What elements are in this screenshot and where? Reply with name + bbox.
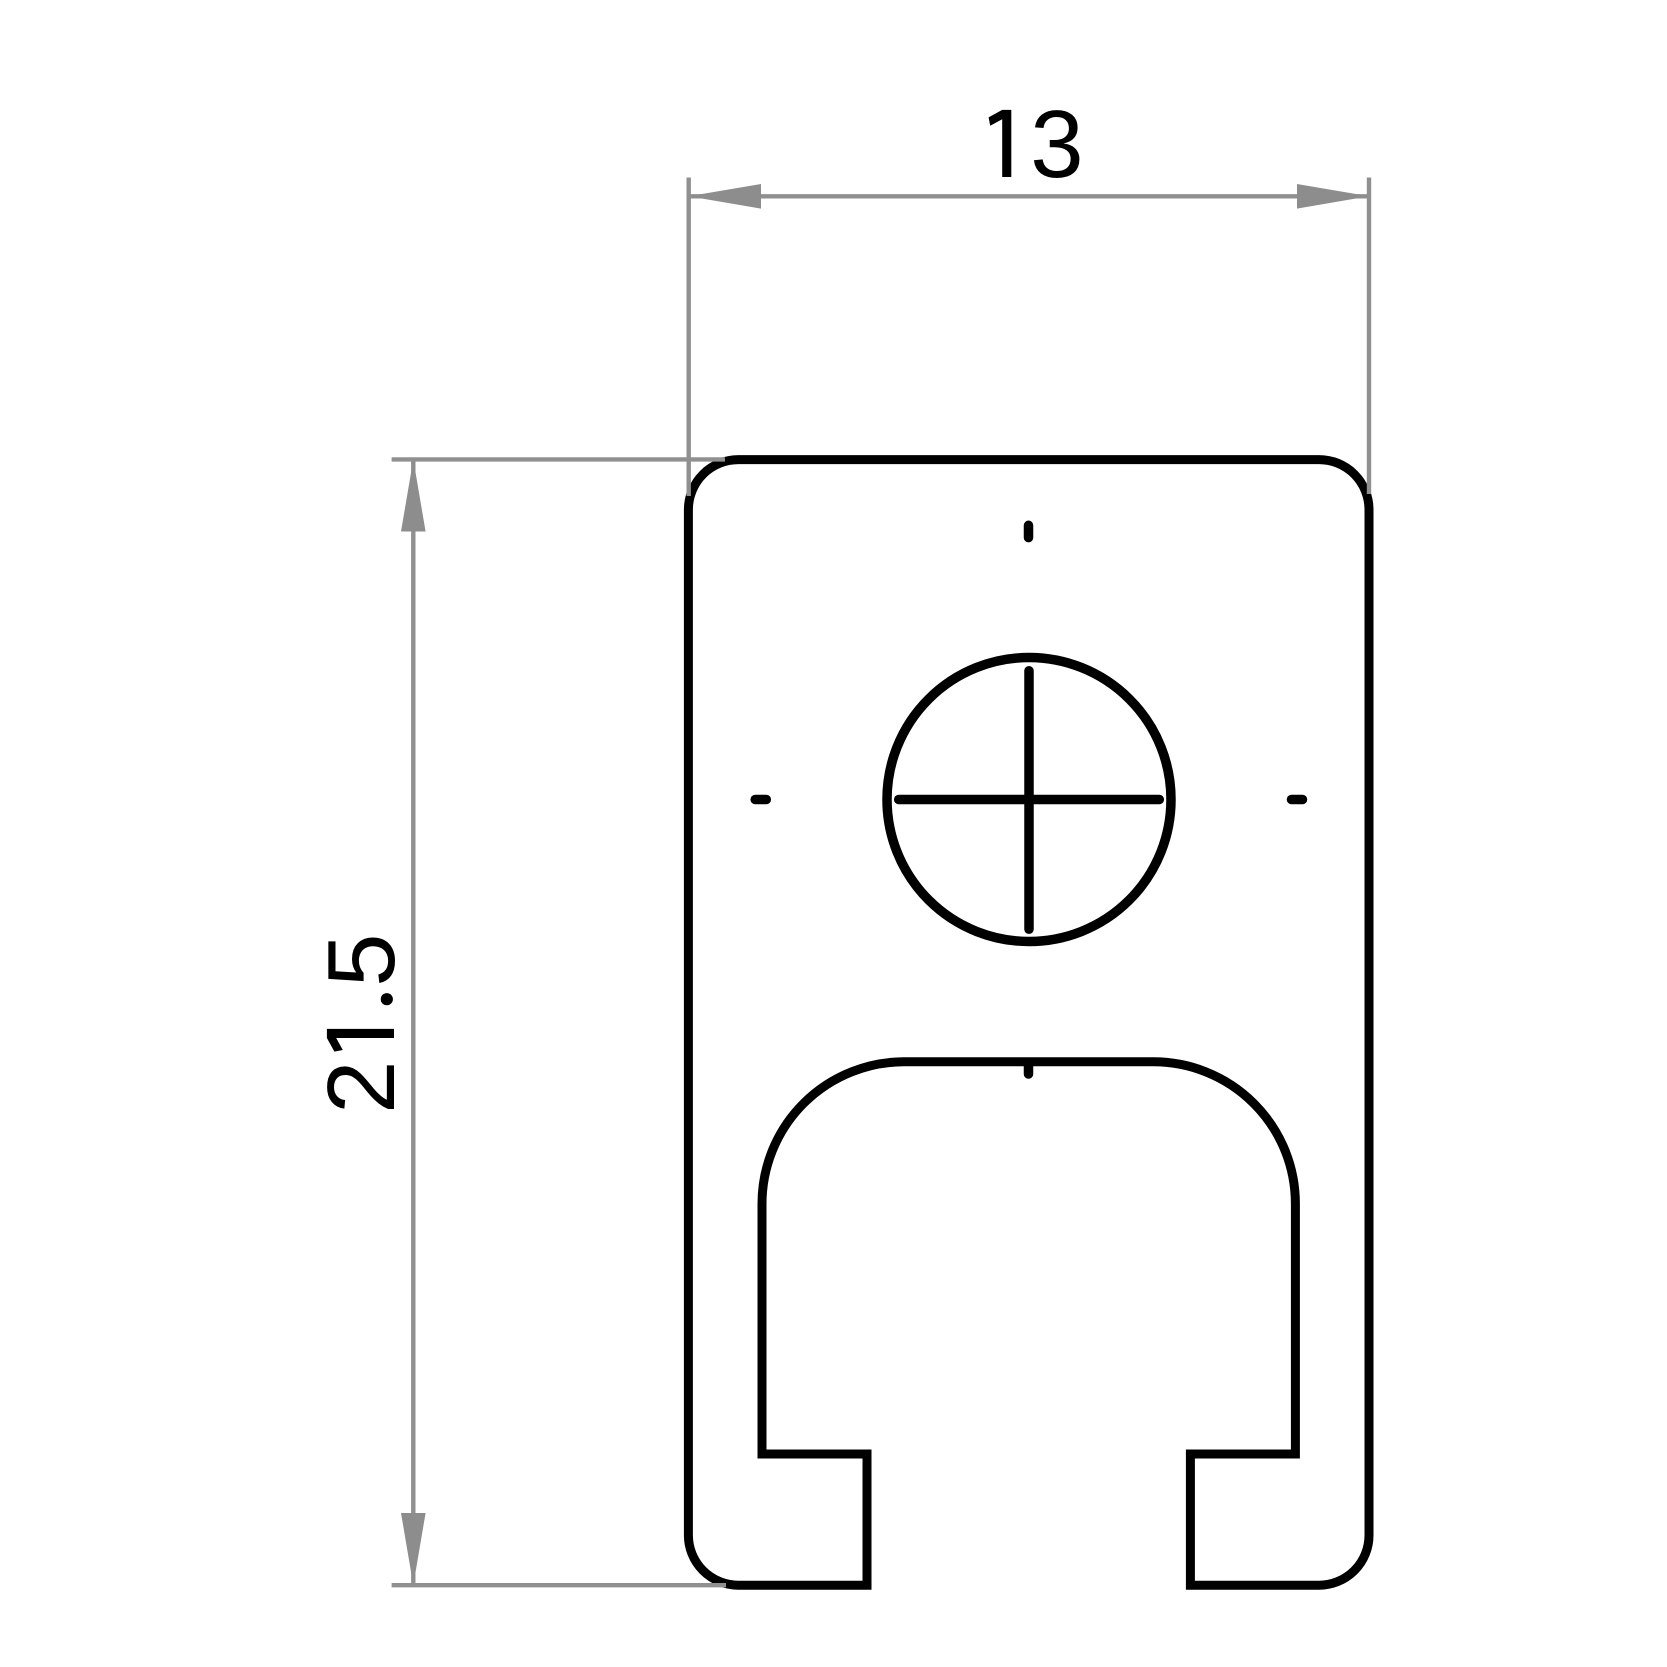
svg-text:2: 2 [308,1061,415,1114]
svg-text:5: 5 [308,934,415,987]
svg-text:3: 3 [1030,91,1083,198]
